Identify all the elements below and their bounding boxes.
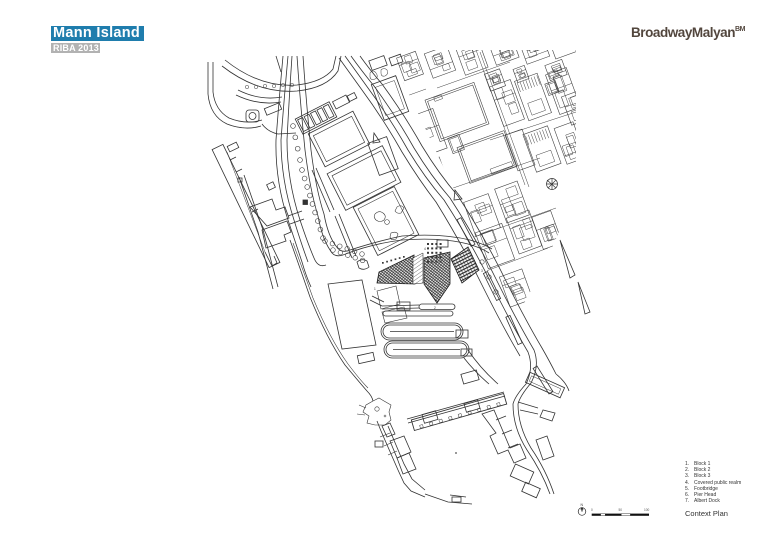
svg-text:1: 1	[374, 287, 376, 291]
svg-text:50: 50	[619, 508, 623, 512]
svg-text:0: 0	[591, 508, 593, 512]
svg-text:3: 3	[481, 269, 483, 273]
svg-text:100: 100	[644, 508, 650, 512]
svg-text:4: 4	[424, 247, 426, 251]
svg-text:N: N	[581, 503, 584, 507]
